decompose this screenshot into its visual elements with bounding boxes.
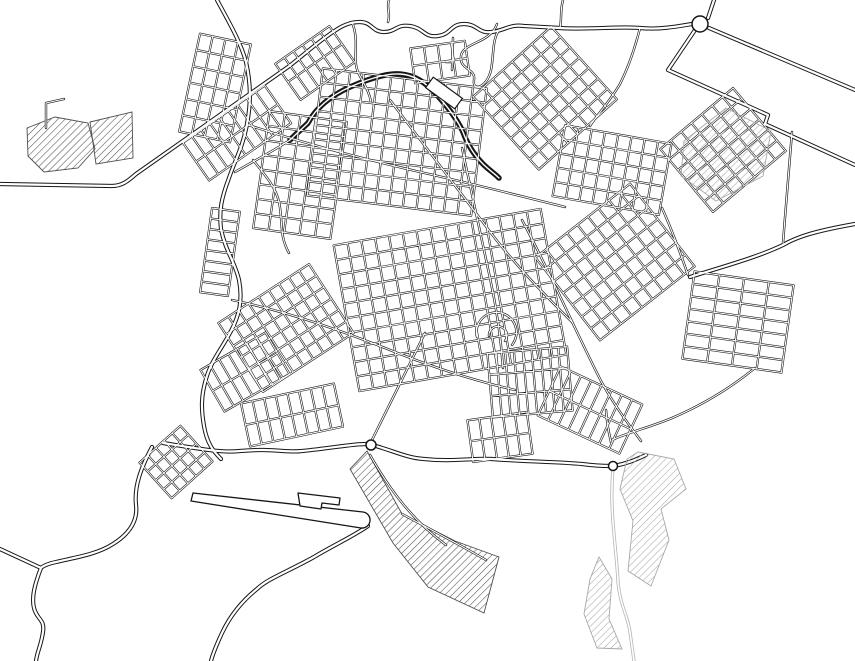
city-map bbox=[0, 0, 855, 661]
city-map-canvas bbox=[0, 0, 855, 661]
airport-runway bbox=[191, 493, 370, 528]
